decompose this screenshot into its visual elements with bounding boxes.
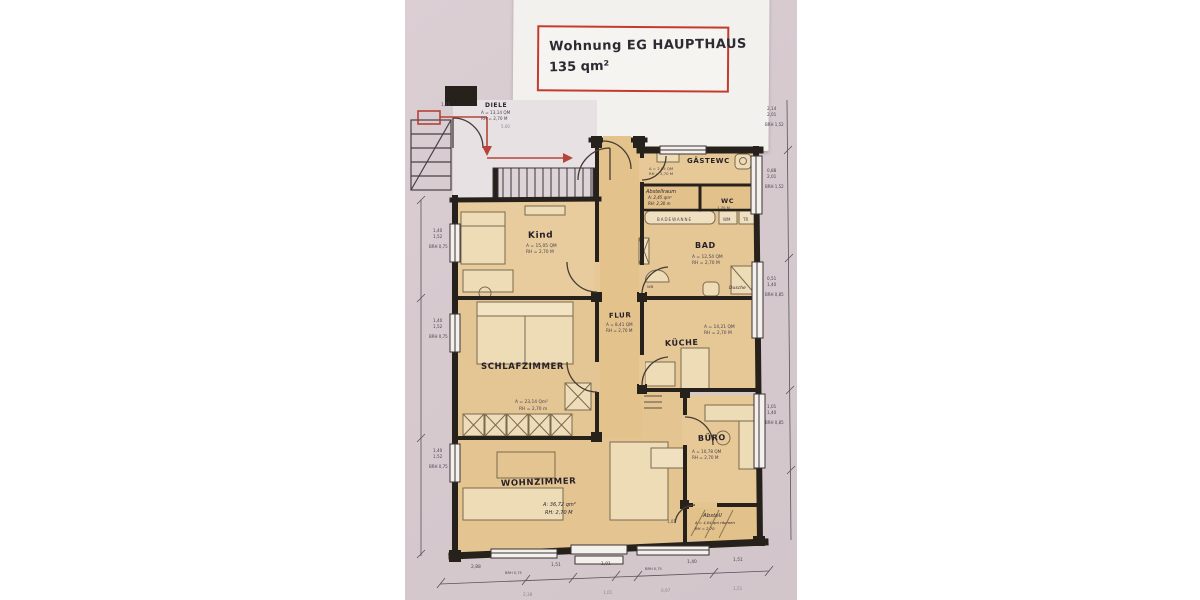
dim-left-2-size: 1,40: [433, 448, 443, 453]
crossed-cabinet-icon: [565, 383, 591, 410]
dim-bottom-5: 1,40: [687, 559, 697, 565]
schlafzimmer-area: A = 23,14 Qm²: [515, 399, 548, 405]
screenshot-canvas: Wohnung EG HAUPTHAUS 135 qm²: [0, 0, 1200, 600]
wc-label: WC: [721, 197, 734, 205]
dim-left-0-size: 1,40: [433, 228, 443, 233]
pillows-icon: [477, 302, 573, 316]
sink-label: WB: [647, 284, 654, 289]
dim-bottom-4: BRH 0,75: [645, 567, 662, 571]
dim-right-3-size: 1,01: [767, 404, 777, 409]
kueche-height: RH = 2,70 M: [704, 330, 732, 336]
dim-bottom2-3: 1,51: [733, 586, 743, 591]
pillow-icon: [461, 212, 505, 226]
shelf-icon: [525, 206, 565, 215]
diele-area: A = 13,14 QM: [481, 110, 511, 115]
dim-left-1-size2: 1,52: [433, 324, 443, 329]
flur-label: FLUR: [609, 311, 632, 320]
bathtub-label: BADEWANNE: [657, 217, 692, 222]
dim-bottom2-1: 1,01: [603, 590, 613, 595]
flur-height: RH = 2,70 M: [606, 328, 633, 333]
dim-right-1-size: 0,88: [767, 168, 777, 173]
dim-right-0-brh: BRH 1,52: [765, 122, 784, 127]
abstell-area: A = 4,04 qm räumen: [694, 520, 735, 525]
dim-right-2-brh: BRH 0,85: [765, 292, 784, 297]
dim-bottom-1: BRH 0,75: [505, 571, 522, 575]
dim-bottom-3: 1,01: [601, 561, 611, 567]
abstell-height: RH = 2,70: [695, 526, 715, 531]
abstellraum-height: RH: 2,30 m: [648, 201, 671, 206]
bad-height: RH = 2,70 M: [692, 260, 720, 266]
dim-right-0-size: 2,14: [767, 106, 777, 111]
flur-floor: [597, 140, 642, 440]
guest-toilet-icon: [735, 154, 751, 169]
scanned-floor-plan-sheet: Wohnung EG HAUPTHAUS 135 qm²: [405, 0, 797, 600]
dim-corridor: 5,00: [501, 124, 510, 129]
buero-height: RH = 2,70 M: [692, 455, 719, 460]
kueche-area: A = 14,21 QM: [704, 324, 735, 330]
staircase-icon: [493, 168, 598, 200]
dim-right-2-size2: 1,40: [767, 282, 777, 287]
dim-right-1-size2: 2,01: [767, 174, 777, 179]
kitchen-island-icon: [681, 348, 709, 390]
abstellraum-area: A: 2,45 qm²: [647, 195, 672, 200]
dim-bottom-2: 1,51: [551, 562, 561, 568]
wohnzimmer-area: A: 36,72 qm²: [542, 502, 576, 508]
wc-sub: 1,70 M: [717, 205, 730, 210]
wardrobe-icon: [463, 414, 572, 436]
buero-label: BÜRO: [698, 432, 726, 443]
dim-right-2-size: 0,51: [767, 276, 777, 281]
washer-label: WM: [723, 217, 731, 222]
dim-left-1-size: 1,40: [433, 318, 443, 323]
dim-left-0-brh: BRH 0,75: [429, 244, 448, 249]
schlafzimmer-height: RH = 2,70 m: [519, 406, 547, 412]
dim-abstell-door: 1,01: [667, 519, 676, 524]
kueche-label: KÜCHE: [665, 337, 699, 348]
dim-door-width: 1,11: [441, 102, 451, 107]
floor-plan-drawing: DIELE A = 13,14 QM RH = 2,70 M Kind A = …: [405, 0, 797, 600]
diele-label: DIELE: [485, 102, 507, 109]
dim-bottom2-0: 2,38: [523, 592, 533, 597]
gaestewc-height: RH = 2,70 M: [649, 171, 673, 176]
dim-left-2-brh: BRH 0,75: [429, 464, 448, 469]
railing-icon: [411, 120, 451, 190]
bad-area: A = 12,54 QM: [692, 254, 723, 260]
abstell-label: Abstell: [702, 513, 722, 519]
sideboard-icon: [651, 448, 685, 468]
kind-height: RH = 2,70 M: [526, 249, 554, 255]
dim-right-3-brh: BRH 0,85: [765, 420, 784, 425]
flur-area: A = 8,41 QM: [606, 322, 633, 327]
dim-bottom-6: 1,51: [733, 557, 743, 563]
wohnzimmer-height: RH: 2,70 M: [545, 510, 573, 516]
office-desk-icon: [705, 405, 757, 421]
dim-left-2-size2: 1,52: [433, 454, 443, 459]
buero-area: A = 10,78 QM: [692, 449, 722, 454]
dim-bottom2-2: 0,97: [661, 588, 671, 593]
schlafzimmer-label: SCHLAFZIMMER: [481, 362, 564, 372]
desk-icon: [463, 270, 513, 292]
bad-label: BAD: [695, 241, 716, 250]
dim-right-1-brh: BRH 1,52: [765, 184, 784, 189]
entrance-marker-box: [418, 111, 440, 124]
kind-area: A = 15,05 QM: [526, 243, 557, 249]
dim-right-3-size2: 1,40: [767, 410, 777, 415]
gaestewc-label: GÄSTEWC: [687, 156, 730, 165]
dim-left-0-size2: 1,52: [433, 234, 443, 239]
dusche-label: Dusche: [729, 285, 746, 291]
dim-left-1-brh: BRH 0,75: [429, 334, 448, 339]
kind-label: Kind: [528, 231, 553, 241]
toilet-icon: [703, 282, 719, 296]
dim-right-0-size2: 2,01: [767, 112, 777, 117]
dryer-label: TR: [742, 217, 748, 222]
dim-bottom-0: 2,88: [471, 564, 481, 570]
diele-height: RH = 2,70 M: [481, 116, 508, 121]
